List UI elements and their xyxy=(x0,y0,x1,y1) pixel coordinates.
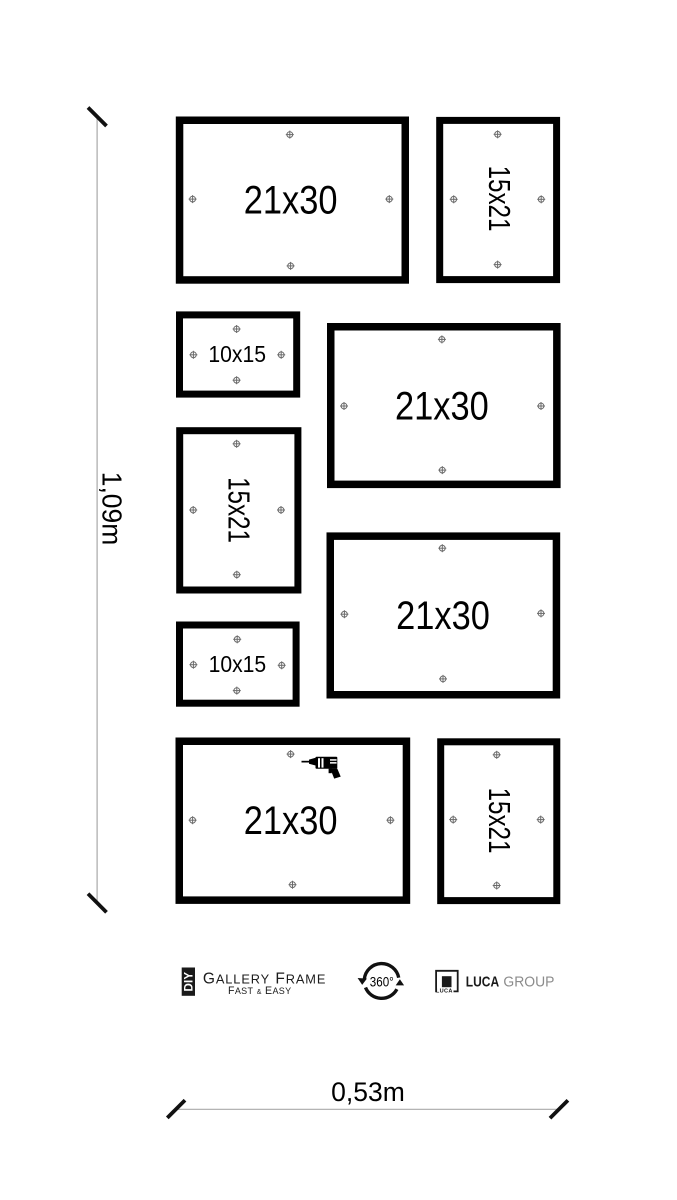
svg-text:21x30: 21x30 xyxy=(396,592,490,637)
svg-text:21x30: 21x30 xyxy=(395,383,489,428)
svg-text:10x15: 10x15 xyxy=(208,341,266,367)
svg-text:360°: 360° xyxy=(370,975,394,990)
svg-text:15x21: 15x21 xyxy=(482,166,517,232)
svg-text:10x15: 10x15 xyxy=(209,651,267,677)
svg-text:21x30: 21x30 xyxy=(244,797,338,842)
svg-text:DIY: DIY xyxy=(183,972,195,992)
svg-text:GROUP: GROUP xyxy=(503,974,554,990)
svg-text:LUCA: LUCA xyxy=(466,973,500,989)
svg-text:15x21: 15x21 xyxy=(222,477,257,543)
svg-text:21x30: 21x30 xyxy=(244,177,338,222)
svg-text:15x21: 15x21 xyxy=(482,788,517,854)
svg-text:0,53m: 0,53m xyxy=(331,1077,405,1107)
svg-text:LUCA: LUCA xyxy=(436,988,453,994)
svg-text:1,09m: 1,09m xyxy=(96,472,128,546)
